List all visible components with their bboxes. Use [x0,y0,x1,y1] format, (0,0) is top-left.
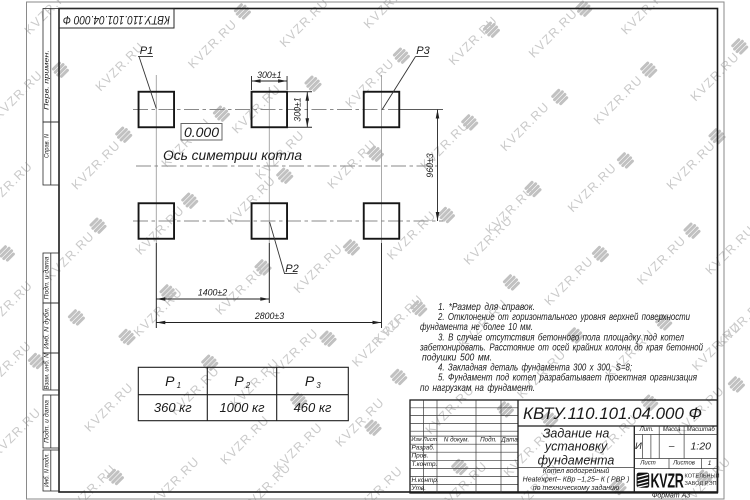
svg-text:Справ. N: Справ. N [44,134,51,158]
svg-text:N докум.: N докум. [444,436,469,444]
svg-text:Подп. и дата: Подп. и дата [43,400,51,443]
svg-text:960±3: 960±3 [425,153,435,178]
svg-text:1: 1 [177,381,181,390]
svg-text:Взам. инб. N: Взам. инб. N [43,353,51,389]
svg-text:по нагрузкам на фундамент.: по нагрузкам на фундамент. [420,382,535,394]
svg-text:300±1: 300±1 [257,70,282,80]
svg-text:1000 кг: 1000 кг [219,400,265,415]
svg-text:P2: P2 [285,263,298,275]
svg-text:KVZR: KVZR [651,469,684,492]
svg-text:Разраб.: Разраб. [412,444,435,452]
svg-text:фундамента: фундамента [538,454,615,468]
svg-text:–: – [668,441,675,452]
svg-text:Т.контр.: Т.контр. [412,461,438,468]
svg-text:Лит.: Лит. [639,427,654,433]
svg-text:КВТУ.110.101.04.000 Ф: КВТУ.110.101.04.000 Ф [63,13,170,25]
svg-text:Подп. и дата: Подп. и дата [43,256,51,299]
svg-text:установку: установку [544,440,608,454]
svg-text:Лист: Лист [639,461,655,467]
svg-text:Ось симетрии котла: Ось симетрии котла [163,147,302,163]
svg-text:1: 1 [708,460,712,467]
svg-text:Инб. N дубл.: Инб. N дубл. [43,307,51,349]
svg-text:Формат А3: Формат А3 [652,492,690,499]
svg-text:ЗАВОД РЭП: ЗАВОД РЭП [685,481,717,487]
svg-text:460 кг: 460 кг [294,400,332,415]
svg-text:Подп.: Подп. [480,436,497,444]
svg-text:P: P [165,373,175,389]
svg-text:Котел водогрейный: Котел водогрейный [543,467,610,475]
svg-text:P: P [234,373,244,389]
svg-text:1:20: 1:20 [690,441,711,453]
svg-text:Масса: Масса [663,427,681,433]
svg-text:Н.контр.: Н.контр. [412,477,439,484]
svg-text:Задание на: Задание на [543,427,610,441]
svg-text:Изм: Изм [411,437,421,443]
svg-text:по техническому заданию: по техническому заданию [533,484,620,492]
svg-text:360 кг: 360 кг [154,400,192,415]
svg-text:КОТЕЛЬНЫЙ: КОТЕЛЬНЫЙ [685,472,720,480]
svg-text:Лист: Лист [422,437,438,443]
svg-text:P3: P3 [416,45,430,57]
svg-text:Утв.: Утв. [411,485,427,492]
svg-text:3: 3 [316,381,321,390]
svg-text:Heatexpert– КВр –1,25– К ( РВР: Heatexpert– КВр –1,25– К ( РВР ) [523,477,630,484]
svg-text:Дата: Дата [500,437,518,444]
svg-text:Перв. примен.: Перв. примен. [44,50,51,110]
svg-text:Листов: Листов [672,461,695,467]
svg-text:P: P [305,373,315,389]
svg-text:2800±3: 2800±3 [254,311,284,321]
svg-text:P1: P1 [140,45,153,57]
svg-text:0.000: 0.000 [184,124,219,140]
svg-text:И: И [635,441,642,452]
svg-text:Инб. N подл.: Инб. N подл. [43,453,51,487]
svg-text:КВТУ.110.101.04.000 Ф: КВТУ.110.101.04.000 Ф [523,405,702,423]
svg-text:300±1: 300±1 [293,97,303,122]
svg-text:Пров.: Пров. [412,453,429,460]
svg-text:Масштаб: Масштаб [687,427,716,433]
svg-text:2: 2 [245,381,251,390]
svg-text:1400±2: 1400±2 [198,288,227,298]
